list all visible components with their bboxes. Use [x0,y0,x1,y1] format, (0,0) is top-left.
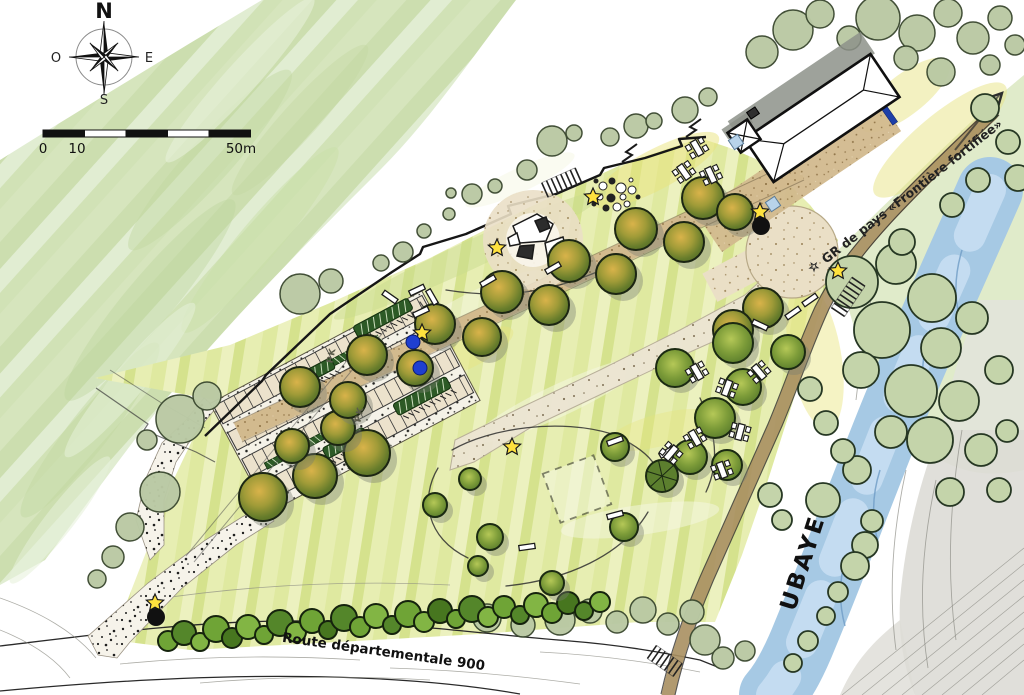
riparian-tree [854,302,910,358]
sage-tree [934,0,962,27]
sage-tree [988,6,1012,30]
sage-tree [624,114,648,138]
riparian-tree [1005,165,1024,191]
compass-north-label: N [95,0,113,23]
sage-tree [88,570,106,588]
boulder [517,245,534,259]
allee-tree [463,318,501,356]
black-dot-marker [752,217,770,235]
sage-tree [601,128,619,146]
table-seat [731,423,737,429]
boulder-stone [609,178,615,184]
sage-tree [488,179,502,193]
sage-tree [699,88,717,106]
riparian-tree [772,510,792,530]
riparian-tree [841,552,869,580]
riparian-tree [908,274,956,322]
riparian-tree [996,420,1018,442]
meadow-tree [423,493,447,517]
meadow-tree [713,323,753,363]
step-rung [561,174,568,189]
riparian-tree [784,654,802,672]
allee-tree [615,208,657,250]
sage-tree [537,126,567,156]
sage-tree [672,97,698,123]
step-rung [575,168,582,183]
riparian-tree [826,256,878,308]
step-rung [551,178,558,193]
sage-tree [630,597,656,623]
meadow-tree [459,468,481,490]
riparian-tree [987,478,1011,502]
sage-tree [680,600,704,624]
sage-tree [606,611,628,633]
riparian-tree [939,381,979,421]
riparian-tree [921,328,961,368]
scale-segment [126,130,168,137]
riparian-tree [831,439,855,463]
allee-tree [717,194,753,230]
step-rung [556,176,563,191]
boulder-stone [629,178,633,182]
sage-tree [280,274,320,314]
table-seat [745,426,751,432]
boulder-stone [613,203,621,211]
scale-segment [43,130,85,137]
sage-tree [517,160,537,180]
blue-dot-marker [406,335,420,349]
riparian-tree [889,229,915,255]
site-plan-drawing: Route départementale 900 UBAYE ☆ GR de p… [0,0,1024,695]
riparian-tree [798,377,822,401]
boulder-stone [624,201,630,207]
meadow-tree [656,349,694,387]
meadow-tree [601,433,629,461]
boulder-stone [616,183,626,193]
roadside-shrub [590,592,610,612]
boulder-stone [636,195,640,199]
riparian-tree [885,365,937,417]
allee-tree [275,429,309,463]
step-rung [570,170,577,185]
riparian-tree [936,478,964,506]
sage-tree [116,513,144,541]
boulder-stone [594,179,598,183]
scale-zero-label: 0 [39,141,48,157]
allee-tree [239,473,287,521]
allee-tree [280,367,320,407]
sage-tree [140,472,180,512]
riparian-tree [907,417,953,463]
allee-tree [347,335,387,375]
sage-tree [735,641,755,661]
sage-tree [712,647,734,669]
sage-tree [393,242,413,262]
table-seat [743,435,749,441]
riparian-tree [814,411,838,435]
compass-west-label: O [51,51,61,66]
meadow-tree [468,556,488,576]
allee-tree [548,240,590,282]
sage-tree [657,613,679,635]
meadow-tree [771,335,805,369]
riparian-tree [843,352,879,388]
scale-segment [168,130,210,137]
boulder-stone [620,194,626,200]
riparian-tree [806,483,840,517]
meadow-tree [477,524,503,550]
sage-tree [806,0,834,28]
riparian-tree [861,510,883,532]
contour-line [0,598,96,658]
allee-tree [596,254,636,294]
sage-tree [957,22,989,54]
scale-segment [85,130,127,137]
riparian-tree [758,483,782,507]
boulder-stone [603,205,609,211]
sage-tree [137,430,157,450]
contour-line [0,630,70,678]
blue-dot-marker [413,361,427,375]
sage-tree [373,255,389,271]
compass-east-label: E [145,51,153,66]
sage-tree [446,188,456,198]
riparian-tree [875,416,907,448]
riparian-tree [817,607,835,625]
landscape-site-plan: Route départementale 900 UBAYE ☆ GR de p… [0,0,1024,695]
boulder-stone [628,186,636,194]
black-dot-marker [147,608,165,626]
scale-fifty-label: 50m [226,141,256,157]
sage-tree [927,58,955,86]
gravel-wash [900,430,1024,695]
sage-tree [566,125,582,141]
sage-tree [980,55,1000,75]
allee-tree [481,271,523,313]
sage-tree [1005,35,1024,55]
allee-tree [529,285,569,325]
sage-tree [443,208,455,220]
contour-line [120,657,360,664]
riparian-tree [966,168,990,192]
allee-tree [664,222,704,262]
sage-tree [417,224,431,238]
riparian-tree [956,302,988,334]
boulder-stone [599,182,607,190]
step-rung [565,172,572,187]
riparian-tree [996,130,1020,154]
riparian-tree [828,582,848,602]
sage-tree [102,546,124,568]
scale-segment [209,130,251,137]
sage-tree [856,0,900,40]
riparian-tree [798,631,818,651]
table-seat [729,431,735,437]
sage-tree [193,382,221,410]
sage-tree [462,184,482,204]
riparian-tree [985,356,1013,384]
boulder-stone [607,194,615,202]
sage-tree [319,269,343,293]
riparian-tree [940,193,964,217]
meadow-tree [540,571,564,595]
sage-tree [646,113,662,129]
riparian-tree [965,434,997,466]
sage-tree [894,46,918,70]
scale-ten-label: 10 [68,141,85,157]
sage-tree [746,36,778,68]
compass-south-label: S [100,93,108,108]
